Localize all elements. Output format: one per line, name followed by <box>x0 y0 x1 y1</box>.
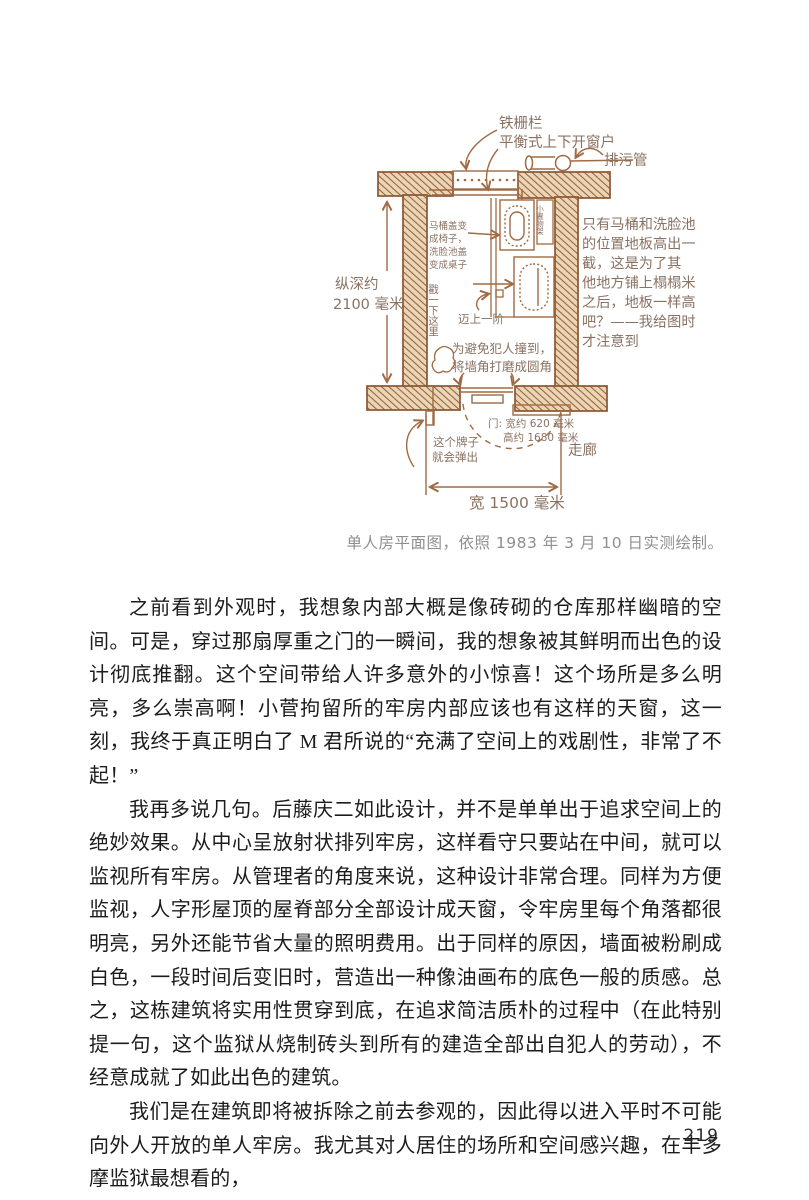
label-iron-grille: 铁栅栏 <box>499 115 543 132</box>
washbasin-unit <box>514 257 554 317</box>
body-text: 之前看到外观时，我想象内部大概是像砖砌的仓库那样幽暗的空间。可是，穿过那扇厚重之… <box>89 592 722 1197</box>
wall-top-right <box>518 172 610 198</box>
label-drain-pipe: 排污管 <box>604 152 648 169</box>
toilet-note-arrow <box>468 233 498 235</box>
wall-bottom-right <box>515 386 607 411</box>
label-sign-note-1: 这个牌子 <box>433 435 479 449</box>
label-corner-note-1: 为避免犯人撞到， <box>452 341 552 356</box>
label-poke-here: 戳一下这里 <box>427 283 439 336</box>
iron-grille-arrow <box>466 130 497 168</box>
floor-note-line-3: 截，这是为了其 <box>582 255 681 272</box>
paragraph-2: 我再多说几句。后藤庆二如此设计，并不是单单出于追求空间上的绝妙效果。从中心呈放射… <box>89 794 722 1096</box>
window-arrow <box>486 149 498 189</box>
paragraph-1: 之前看到外观时，我想象内部大概是像砖砌的仓库那样幽暗的空间。可是，穿过那扇厚重之… <box>89 592 722 794</box>
floor-note-line-4: 他地方铺上榻榻米 <box>582 276 696 292</box>
wall-top-left <box>378 172 453 196</box>
floor-note-line-7: 才注意到 <box>582 333 639 350</box>
label-corner-note-2: 将墙角打磨成圆角 <box>452 359 552 374</box>
label-depth-1: 纵深约 <box>335 276 379 293</box>
label-depth-2: 2100 毫米 <box>333 295 404 313</box>
book-page: 铁栅栏 平衡式上下开窗户 排污管 纵深约 2100 毫米 马桶盖变 成椅子， 洗… <box>0 0 809 1200</box>
label-toilet-note-2: 成椅子， <box>429 233 467 245</box>
wall-right <box>555 197 578 387</box>
label-door-note-1: 门: 宽约 620 毫米 <box>488 417 575 430</box>
floor-height-note: 只有马桶和洗脸池 的位置地板高出一 截，这是为了其 他地方铺上榻榻米 之后，地板… <box>582 217 696 350</box>
cell-floor-plan: 铁栅栏 平衡式上下开窗户 排污管 纵深约 2100 毫米 马桶盖变 成椅子， 洗… <box>292 105 722 523</box>
label-toilet-note-3: 洗脸池盖 <box>429 246 468 258</box>
page-number: 219 <box>684 1126 719 1146</box>
step-arrow <box>477 294 488 310</box>
label-balanced-window: 平衡式上下开窗户 <box>499 133 615 151</box>
label-toilet-note-1: 马桶盖变 <box>429 220 468 232</box>
label-sign-note-2: 就会弹出 <box>432 450 478 464</box>
door-leaf <box>472 395 503 403</box>
floor-note-line-6: 吧？——我给图时 <box>582 315 696 331</box>
floor-note-line-2: 的位置地板高出一 <box>582 236 696 253</box>
label-corridor: 走廊 <box>568 442 597 459</box>
step-marker <box>496 290 503 297</box>
label-step-up: 迈上一阶 <box>458 312 504 326</box>
floor-note-line-1: 只有马桶和洗脸池 <box>582 217 696 233</box>
corner-arrow-right <box>511 373 514 384</box>
figure-caption: 单人房平面图，依照 1983 年 3 月 10 日实测绘制。 <box>300 531 770 553</box>
floor-note-line-5: 之后，地板一样高 <box>582 294 696 311</box>
corner-arrow-left <box>460 373 464 384</box>
wall-bottom-left <box>367 386 460 410</box>
label-width: 宽 1500 毫米 <box>469 493 565 512</box>
label-shelf: 小置物架 <box>535 205 544 237</box>
cell-floor-plan-figure: 铁栅栏 平衡式上下开窗户 排污管 纵深约 2100 毫米 马桶盖变 成椅子， 洗… <box>292 105 722 528</box>
walls <box>367 172 610 411</box>
label-toilet-note-4: 变成桌子 <box>429 259 468 271</box>
sign-arrow <box>407 421 422 467</box>
toilet-unit <box>500 200 534 250</box>
paragraph-3: 我们是在建筑即将被拆除之前去参观的，因此得以进入平时不可能向外人开放的单人牢房。… <box>89 1096 722 1197</box>
wall-left <box>403 195 427 387</box>
